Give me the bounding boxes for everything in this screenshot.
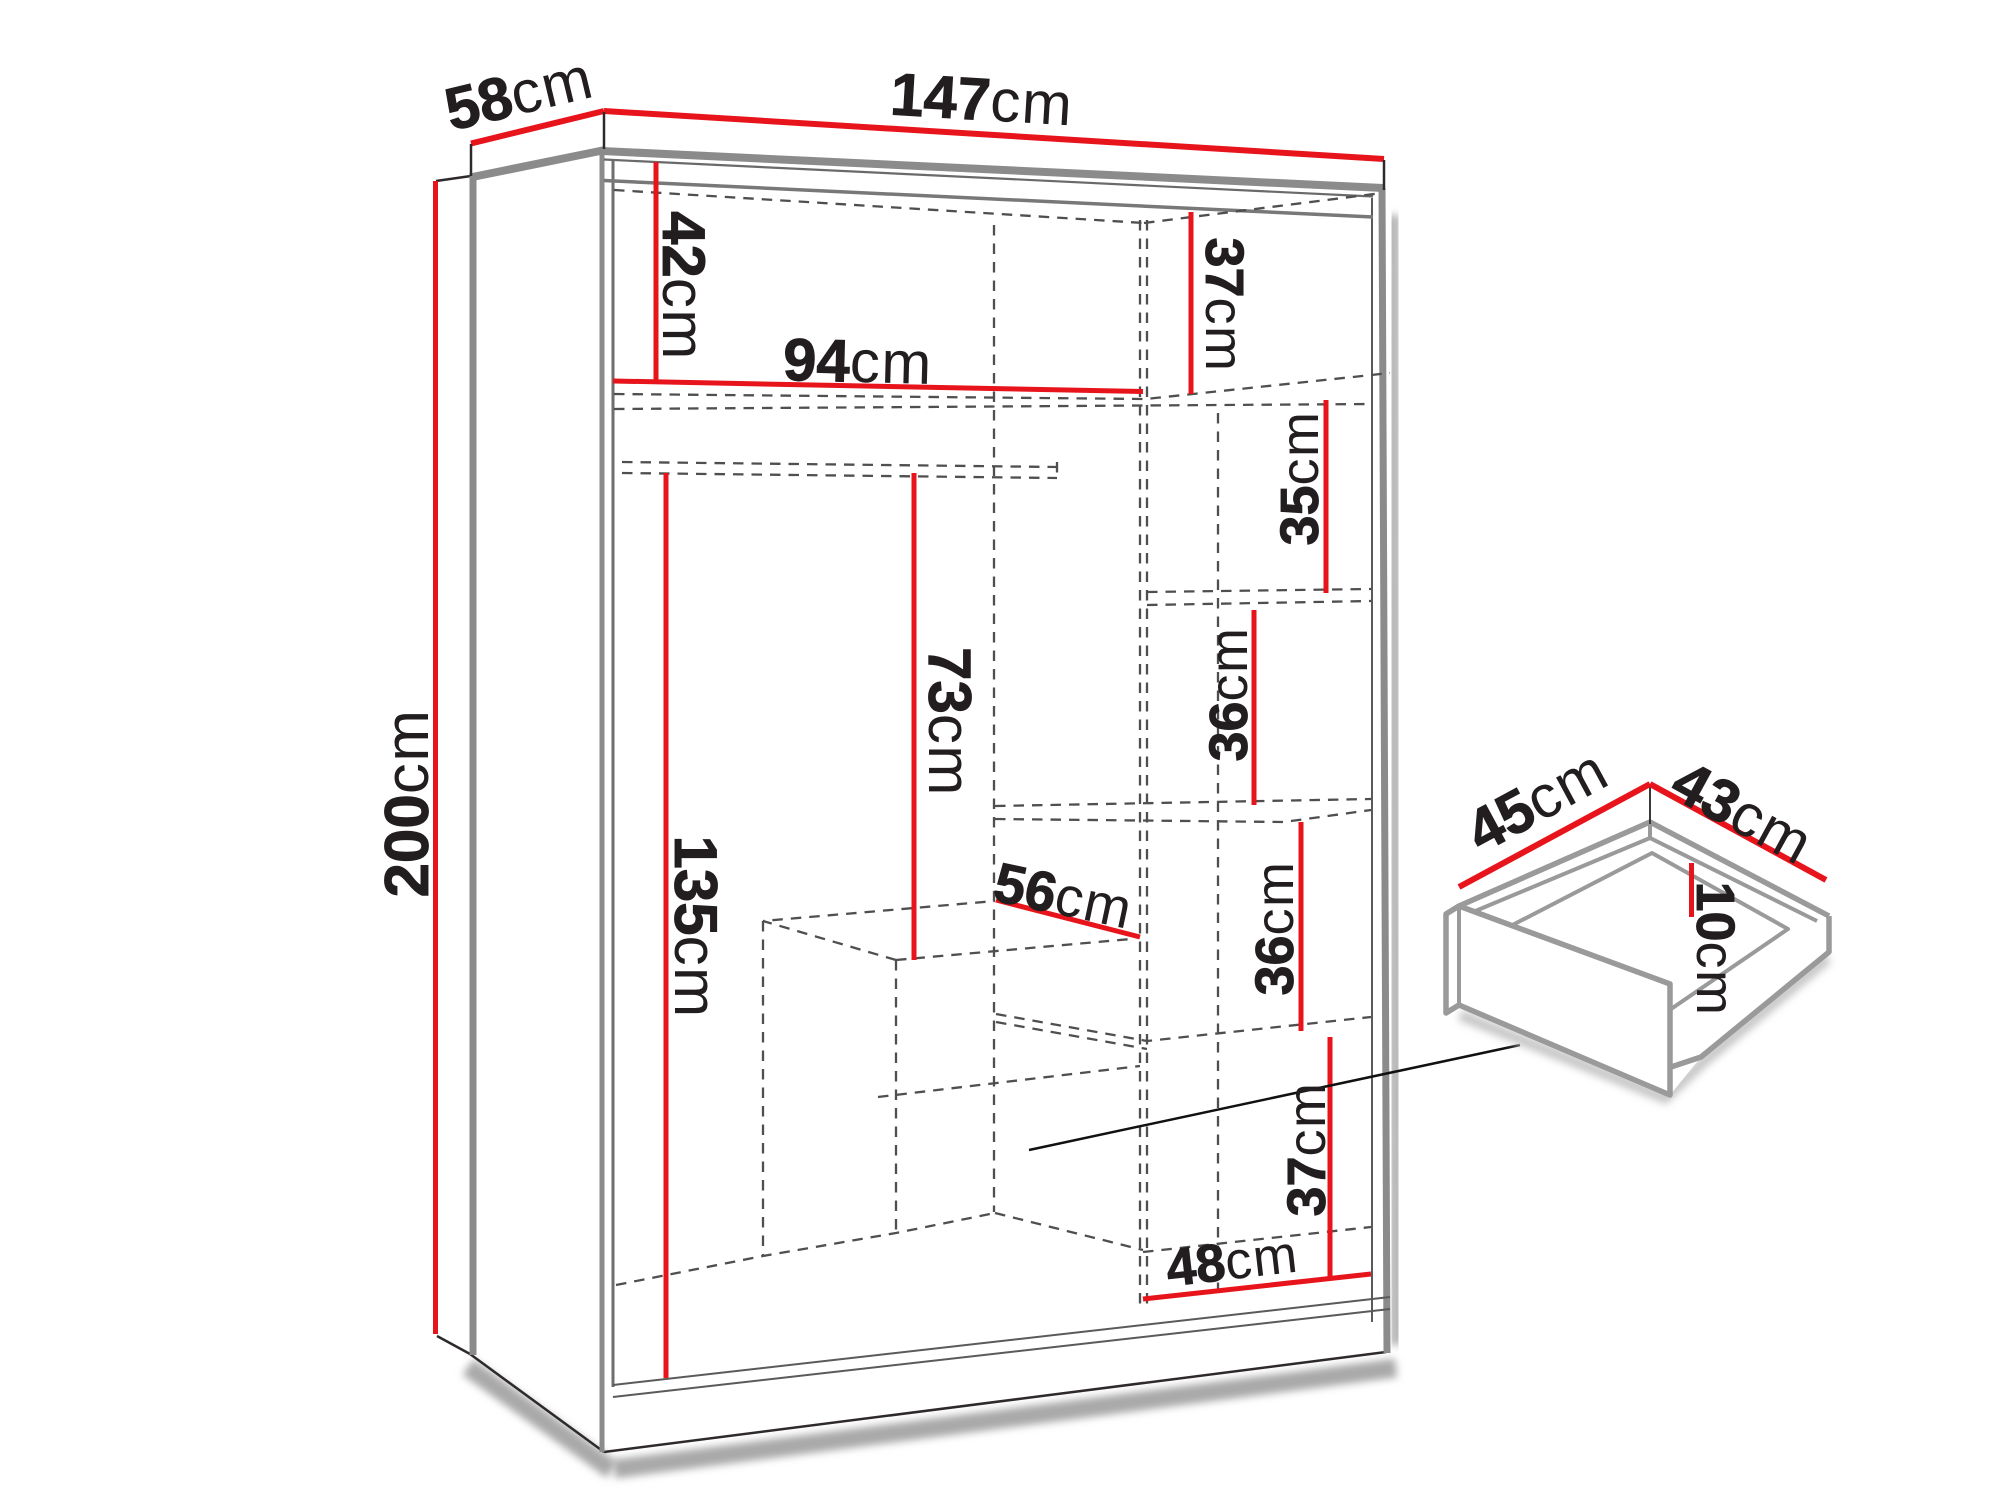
svg-text:10cm: 10cm [1685, 881, 1745, 1016]
svg-text:73cm: 73cm [916, 647, 983, 797]
svg-text:36cm: 36cm [1245, 860, 1305, 995]
svg-text:37cm: 37cm [1277, 1081, 1337, 1216]
svg-text:147cm: 147cm [889, 60, 1076, 138]
svg-text:35cm: 35cm [1270, 410, 1330, 545]
svg-text:42cm: 42cm [650, 211, 717, 361]
svg-text:94cm: 94cm [782, 326, 933, 397]
svg-text:36cm: 36cm [1199, 626, 1259, 761]
svg-text:135cm: 135cm [662, 835, 729, 1018]
svg-text:200cm: 200cm [373, 708, 442, 897]
svg-text:37cm: 37cm [1194, 237, 1254, 372]
